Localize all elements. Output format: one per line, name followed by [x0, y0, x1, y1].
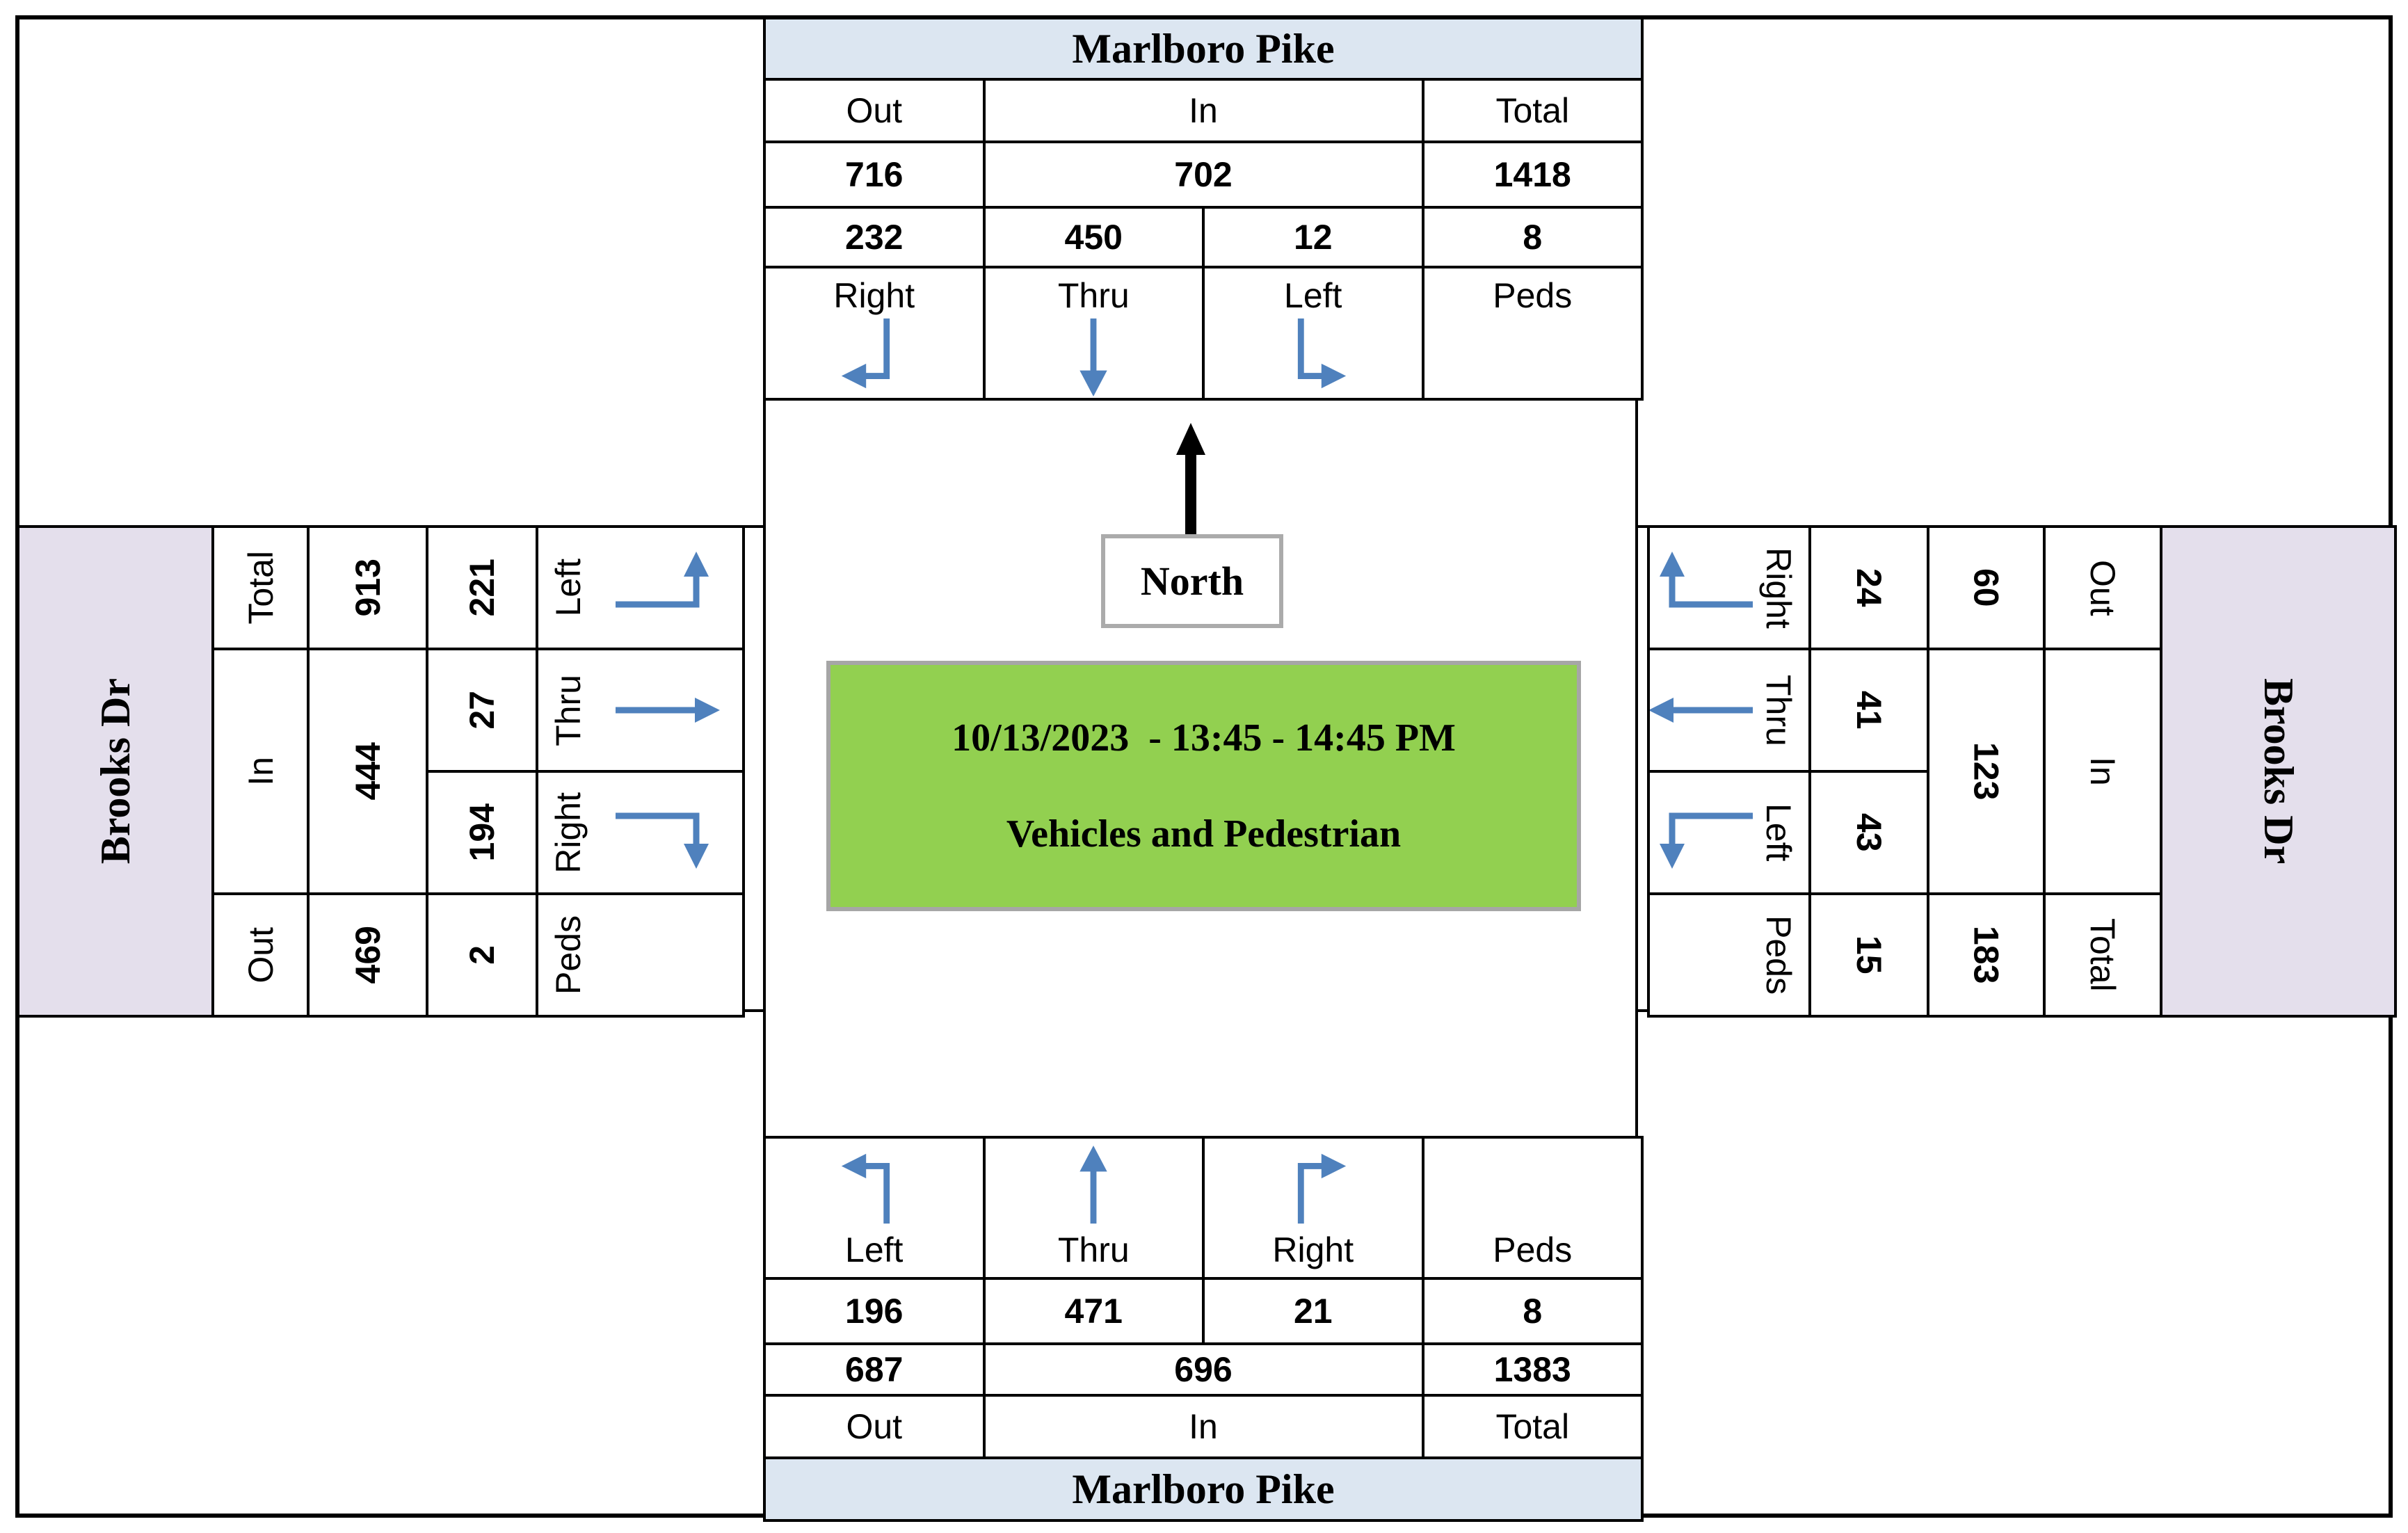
- south-left-movement-cell: Left: [766, 1139, 983, 1277]
- north-total-value: 1418: [1424, 143, 1642, 206]
- intersection-count-diagram: Marlboro Pike Out In Total 716 702 1418 …: [0, 0, 2408, 1533]
- title-subtitle: Vehicles and Pedestrian: [1006, 812, 1401, 856]
- turn-arrow-up-then-left-icon: [833, 1139, 916, 1230]
- north-left-label: Left: [1284, 275, 1342, 316]
- west-peds-value: 2: [428, 895, 536, 1015]
- south-left-label: Left: [845, 1230, 903, 1270]
- west-total-value: 913: [310, 528, 426, 648]
- east-left-label: Left: [1758, 803, 1799, 861]
- east-in-value: 123: [1929, 650, 2043, 892]
- east-thru-label: Thru: [1758, 675, 1799, 746]
- arrow-down-icon: [1052, 316, 1135, 398]
- south-right-value: 21: [1205, 1280, 1422, 1342]
- east-thru-movement-cell: Thru: [1650, 650, 1808, 770]
- turn-arrow-down-then-left-icon: [833, 316, 916, 398]
- east-right-label: Right: [1758, 547, 1799, 629]
- north-compass-box: North: [1101, 534, 1283, 628]
- north-peds-value: 8: [1424, 209, 1642, 266]
- north-thru-label: Thru: [1058, 275, 1130, 316]
- south-thru-label: Thru: [1058, 1230, 1130, 1270]
- north-left-movement-cell: Left: [1205, 268, 1422, 398]
- south-left-value: 196: [766, 1280, 983, 1342]
- north-out-value: 716: [766, 143, 983, 206]
- west-in-value: 444: [310, 650, 426, 892]
- south-total-value: 1383: [1424, 1345, 1642, 1394]
- title-box: 10/13/2023 - 13:45 - 14:45 PM Vehicles a…: [826, 661, 1581, 911]
- south-in-label: In: [986, 1397, 1422, 1456]
- turn-arrow-up-then-right-icon: [1271, 1139, 1355, 1230]
- east-peds-value: 15: [1811, 895, 1927, 1015]
- arrow-left-icon: [1650, 668, 1758, 752]
- ns-road-right-edge-line: [1635, 395, 1638, 1136]
- north-left-value: 12: [1205, 209, 1422, 266]
- east-left-movement-cell: Left: [1650, 773, 1808, 892]
- north-compass-label: North: [1141, 558, 1244, 604]
- east-in-label: In: [2046, 650, 2160, 892]
- north-road-header: Marlboro Pike: [766, 19, 1641, 78]
- north-peds-movement-cell: Peds: [1424, 268, 1642, 398]
- east-right-movement-cell: Right: [1650, 528, 1808, 648]
- south-total-label: Total: [1424, 1397, 1642, 1456]
- arrow-up-icon: [1052, 1139, 1135, 1230]
- north-compass-arrow-icon: [1175, 423, 1206, 534]
- north-total-label: Total: [1424, 81, 1642, 141]
- south-road-name: Marlboro Pike: [1072, 1466, 1334, 1514]
- south-peds-label: Peds: [1493, 1230, 1572, 1270]
- west-left-movement-cell: Left: [538, 528, 742, 648]
- south-in-value: 696: [986, 1345, 1422, 1394]
- south-peds-value: 8: [1424, 1280, 1642, 1342]
- south-road-header: Marlboro Pike: [766, 1459, 1641, 1519]
- north-right-movement-cell: Right: [766, 268, 983, 398]
- turn-arrow-left-then-up-icon: [1650, 546, 1758, 629]
- east-out-value: 60: [1929, 528, 2043, 648]
- north-in-label: In: [986, 81, 1422, 141]
- east-road-header: Brooks Dr: [2162, 528, 2394, 1015]
- west-right-value: 194: [428, 773, 536, 892]
- west-approach-table: Brooks Dr Total In Out 913 444 469 221 2…: [17, 525, 745, 1018]
- west-peds-label: Peds: [548, 915, 588, 995]
- north-out-label: Out: [766, 81, 983, 141]
- east-total-value: 183: [1929, 895, 2043, 1015]
- south-thru-movement-cell: Thru: [986, 1139, 1203, 1277]
- west-road-name: Brooks Dr: [92, 678, 140, 864]
- west-left-value: 221: [428, 528, 536, 648]
- west-left-label: Left: [548, 559, 588, 616]
- turn-arrow-right-then-up-icon: [588, 546, 742, 629]
- west-thru-label: Thru: [548, 675, 588, 746]
- arrow-right-icon: [588, 668, 742, 752]
- west-total-label: Total: [214, 528, 307, 648]
- north-peds-label: Peds: [1493, 275, 1572, 316]
- east-road-name: Brooks Dr: [2254, 678, 2302, 864]
- north-right-value: 232: [766, 209, 983, 266]
- north-thru-movement-cell: Thru: [986, 268, 1203, 398]
- north-thru-value: 450: [986, 209, 1203, 266]
- south-right-movement-cell: Right: [1205, 1139, 1422, 1277]
- west-in-label: In: [214, 650, 307, 892]
- turn-arrow-right-then-down-icon: [588, 791, 742, 874]
- west-right-movement-cell: Right: [538, 773, 742, 892]
- west-right-label: Right: [548, 792, 588, 874]
- north-approach-table: Marlboro Pike Out In Total 716 702 1418 …: [763, 17, 1644, 401]
- south-out-value: 687: [766, 1345, 983, 1394]
- south-approach-table: Left Thru Right Peds 196 471 21 8 687 69…: [763, 1136, 1644, 1522]
- east-out-label: Out: [2046, 528, 2160, 648]
- west-road-header: Brooks Dr: [19, 528, 211, 1015]
- east-right-value: 24: [1811, 528, 1927, 648]
- south-peds-movement-cell: Peds: [1424, 1139, 1642, 1277]
- west-thru-value: 27: [428, 650, 536, 770]
- east-total-label: Total: [2046, 895, 2160, 1015]
- north-in-value: 702: [986, 143, 1422, 206]
- west-thru-movement-cell: Thru: [538, 650, 742, 770]
- west-peds-movement-cell: Peds: [538, 895, 742, 1015]
- turn-arrow-left-then-down-icon: [1650, 791, 1758, 874]
- east-approach-table: Right Thru Left Peds 24 41 43 15 60 123 …: [1647, 525, 2397, 1018]
- south-right-label: Right: [1272, 1230, 1354, 1270]
- title-datetime: 10/13/2023 - 13:45 - 14:45 PM: [952, 716, 1456, 760]
- west-out-label: Out: [214, 895, 307, 1015]
- north-road-name: Marlboro Pike: [1072, 25, 1334, 73]
- turn-arrow-down-then-right-icon: [1271, 316, 1355, 398]
- north-right-label: Right: [833, 275, 915, 316]
- east-thru-value: 41: [1811, 650, 1927, 770]
- east-peds-movement-cell: Peds: [1650, 895, 1808, 1015]
- west-out-value: 469: [310, 895, 426, 1015]
- east-left-value: 43: [1811, 773, 1927, 892]
- ns-road-left-edge-line: [763, 395, 766, 1136]
- south-out-label: Out: [766, 1397, 983, 1456]
- east-peds-label: Peds: [1758, 915, 1799, 995]
- south-thru-value: 471: [986, 1280, 1203, 1342]
